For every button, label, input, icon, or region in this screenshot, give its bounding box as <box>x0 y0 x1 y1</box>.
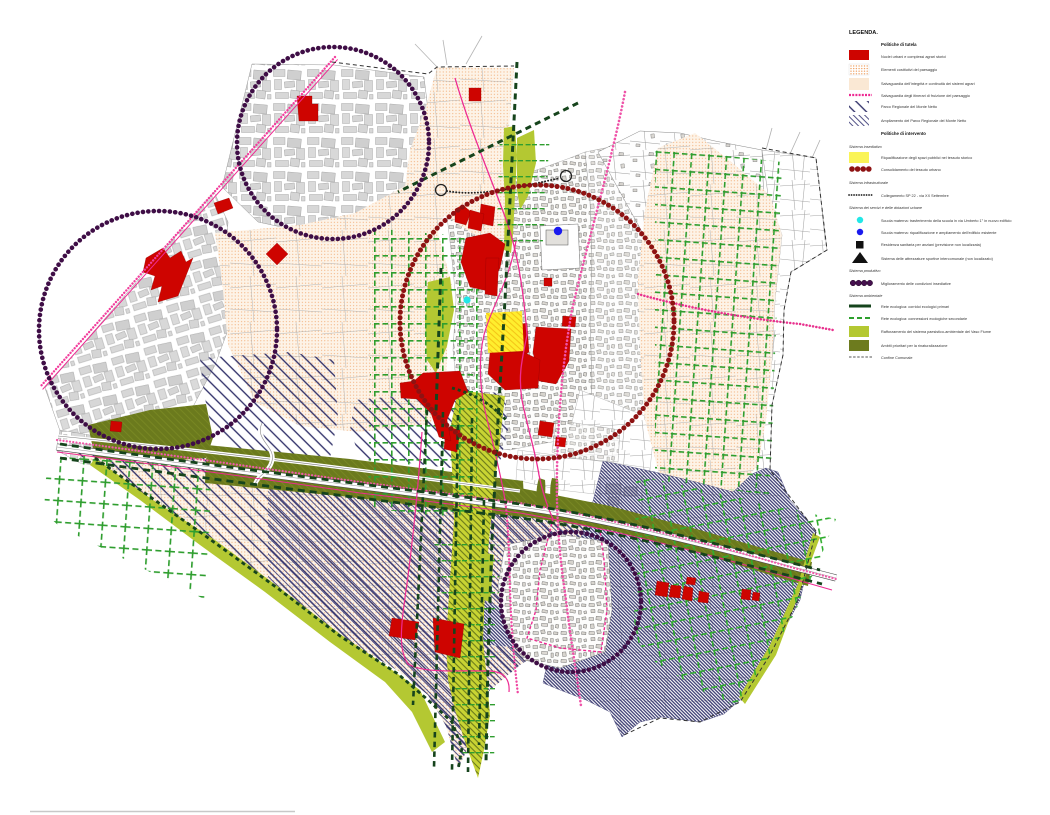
svg-text:Salvaguardia dell'integrità e: Salvaguardia dell'integrità e continuità… <box>881 82 975 86</box>
svg-text:Ampliamento del Parco Regional: Ampliamento del Parco Regionale del Mont… <box>881 119 966 123</box>
svg-text:Confine Comunale: Confine Comunale <box>881 356 912 360</box>
svg-text:Elementi costitutivi del paesa: Elementi costitutivi del paesaggio <box>881 68 937 72</box>
svg-text:Nuclei urbani e complessi agra: Nuclei urbani e complessi agrari storici <box>881 55 946 59</box>
svg-text:Sistema delle attrezzature spo: Sistema delle attrezzature sportive inte… <box>881 257 994 261</box>
svg-text:Rete ecologica: connessioni ec: Rete ecologica: connessioni ecologiche s… <box>881 317 967 321</box>
svg-text:Miglioramento delle condizioni: Miglioramento delle condizioni insediati… <box>881 282 951 286</box>
svg-text:Salvaguardia degli itinerari d: Salvaguardia degli itinerari di fruizion… <box>881 94 970 98</box>
svg-text:Sistema infrastrutturale: Sistema infrastrutturale <box>849 181 888 185</box>
svg-text:Sistema produttivo: Sistema produttivo <box>849 269 880 273</box>
svg-text:Rafforzamento del sistema paes: Rafforzamento del sistema paesistico-amb… <box>881 330 991 334</box>
svg-text:Sistema ambientale: Sistema ambientale <box>849 294 882 298</box>
svg-text:Scuola materna: riqualificazio: Scuola materna: riqualificazione e ampli… <box>881 231 997 235</box>
svg-text:Sistema dei servizi e delle do: Sistema dei servizi e delle dotazioni ur… <box>849 206 922 210</box>
svg-text:Scuola materna: trasferimento: Scuola materna: trasferimento della scuo… <box>881 219 1011 223</box>
svg-text:Politiche di intervento: Politiche di intervento <box>881 131 926 136</box>
svg-text:Ambiti prioritari per la rinat: Ambiti prioritari per la rinaturalizzazi… <box>881 344 947 348</box>
svg-text:Consolidamento del tessuto urb: Consolidamento del tessuto urbano <box>881 168 941 172</box>
svg-text:Parco Regionale del Monte Nett: Parco Regionale del Monte Netto <box>881 105 937 109</box>
svg-text:Politiche di tutela: Politiche di tutela <box>881 42 917 47</box>
svg-text:Residenza sanitaria per anzian: Residenza sanitaria per anziani (previsi… <box>881 243 982 247</box>
svg-text:Rete ecologica: corridoi ecolo: Rete ecologica: corridoi ecologici prima… <box>881 305 949 309</box>
svg-text:Collegamento SP 22 - via XX Se: Collegamento SP 22 - via XX Settembre <box>881 194 949 198</box>
svg-text:LEGENDA.: LEGENDA. <box>849 30 878 36</box>
svg-text:Riqualificazione degli spazi p: Riqualificazione degli spazi pubblici ne… <box>881 156 972 160</box>
svg-text:Sistema insediativo: Sistema insediativo <box>849 145 882 149</box>
